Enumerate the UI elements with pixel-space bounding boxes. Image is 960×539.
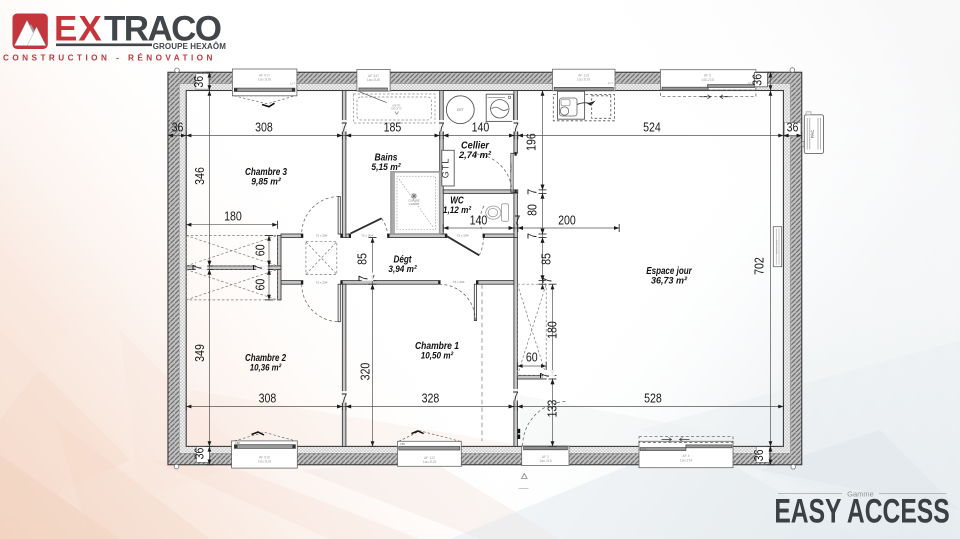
- svg-text:180: 180: [224, 209, 242, 224]
- svg-text:7: 7: [190, 265, 205, 271]
- svg-text:36: 36: [787, 120, 799, 135]
- svg-text:36: 36: [751, 449, 766, 461]
- svg-text:SECHE SERV: SECHE SERV: [777, 239, 779, 254]
- svg-text:200: 200: [558, 213, 576, 228]
- svg-text:10,50 m²: 10,50 m²: [421, 351, 454, 361]
- svg-text:7: 7: [513, 120, 519, 135]
- svg-text:133: 133: [545, 400, 560, 418]
- svg-text:AF 4471au 2US: AF 4471au 2US: [367, 74, 381, 82]
- svg-text:2,74 m²: 2,74 m²: [458, 150, 492, 160]
- svg-text:308: 308: [255, 120, 273, 135]
- svg-text:AF 1221au 2US: AF 1221au 2US: [423, 456, 437, 464]
- svg-text:85: 85: [355, 253, 370, 265]
- svg-text:140: 140: [472, 120, 490, 135]
- svg-text:7: 7: [513, 388, 519, 403]
- svg-text:AF 1131au 2US: AF 1131au 2US: [577, 74, 591, 82]
- svg-text:60: 60: [252, 279, 267, 291]
- svg-text:EX: EX: [54, 10, 103, 49]
- svg-text:1,12 m²: 1,12 m²: [443, 205, 472, 215]
- svg-text:GROUPE HEXAÔM: GROUPE HEXAÔM: [153, 42, 227, 51]
- svg-text:73 x 204: 73 x 204: [361, 233, 373, 237]
- svg-text:180: 180: [545, 321, 560, 339]
- svg-text:36: 36: [191, 448, 206, 460]
- svg-text:60: 60: [526, 350, 538, 365]
- svg-text:524: 524: [643, 120, 661, 135]
- svg-text:36: 36: [191, 76, 206, 88]
- svg-text:36: 36: [172, 120, 184, 135]
- svg-text:7: 7: [525, 189, 540, 195]
- svg-text:GTL: GTL: [441, 158, 451, 179]
- svg-text:12 F: 12 F: [608, 81, 614, 85]
- svg-text:702: 702: [752, 257, 767, 275]
- svg-text:12 F: 12 F: [290, 82, 296, 86]
- svg-text:80: 80: [525, 204, 540, 216]
- svg-text:CET: CET: [457, 108, 464, 112]
- svg-text:CLIENT: CLIENT: [409, 202, 420, 206]
- svg-text:85: 85: [539, 253, 554, 265]
- svg-text:7: 7: [356, 275, 371, 281]
- svg-text:196: 196: [524, 133, 539, 151]
- svg-text:308: 308: [259, 391, 277, 406]
- svg-text:140: 140: [470, 213, 488, 228]
- svg-text:7: 7: [525, 233, 540, 239]
- svg-text:7: 7: [341, 391, 347, 406]
- svg-text:PAC: PAC: [810, 130, 815, 138]
- svg-text:7: 7: [514, 213, 520, 228]
- svg-text:9,85 m²: 9,85 m²: [251, 177, 281, 187]
- svg-text:60: 60: [252, 244, 267, 256]
- svg-text:528: 528: [644, 391, 662, 406]
- svg-text:CONSTRUCTION - RÉNOVATION: CONSTRUCTION - RÉNOVATION: [3, 53, 216, 63]
- svg-text:150: 150: [642, 448, 647, 452]
- svg-text:7: 7: [439, 120, 445, 135]
- svg-text:320: 320: [358, 363, 373, 381]
- svg-text:AF 0101au 2US: AF 0101au 2US: [258, 456, 272, 464]
- svg-text:36,73 m²: 36,73 m²: [651, 276, 688, 286]
- svg-text:DROITS: DROITS: [391, 107, 402, 111]
- svg-text:185: 185: [384, 120, 402, 135]
- svg-text:7: 7: [250, 265, 265, 271]
- svg-text:7: 7: [537, 373, 552, 379]
- svg-text:10,36 m²: 10,36 m²: [250, 363, 282, 373]
- svg-text:73 x 204: 73 x 204: [316, 234, 328, 238]
- svg-text:5,15 m²: 5,15 m²: [371, 162, 401, 172]
- svg-text:3,94 m²: 3,94 m²: [388, 264, 417, 274]
- svg-text:73 x 204: 73 x 204: [457, 234, 469, 238]
- svg-text:73x204: 73x204: [509, 162, 513, 172]
- svg-text:349: 349: [192, 344, 207, 362]
- svg-text:36: 36: [750, 74, 765, 86]
- svg-text:346: 346: [192, 167, 207, 185]
- svg-text:328: 328: [422, 391, 440, 406]
- svg-text:7: 7: [540, 277, 555, 283]
- svg-text:73 x 204: 73 x 204: [316, 280, 328, 284]
- svg-text:EASY ACCESS: EASY ACCESS: [774, 493, 949, 531]
- svg-text:AF 0171au 2US: AF 0171au 2US: [258, 74, 272, 82]
- svg-text:73 x 204: 73 x 204: [453, 280, 465, 284]
- svg-text:150: 150: [400, 442, 405, 446]
- svg-text:7: 7: [341, 120, 347, 135]
- svg-text:150: 150: [235, 441, 240, 445]
